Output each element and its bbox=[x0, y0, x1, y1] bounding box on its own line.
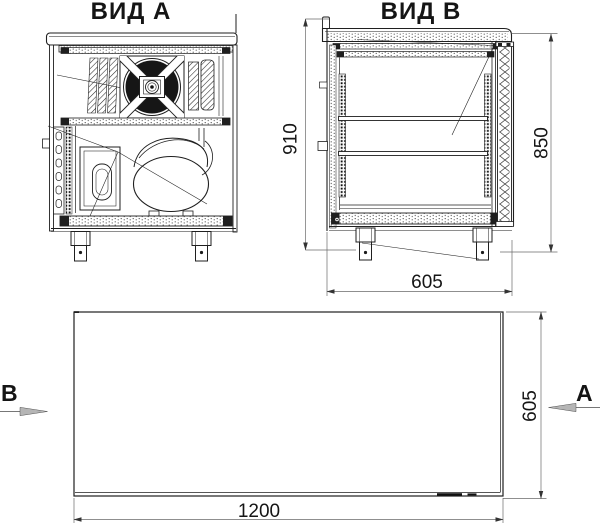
divider-shelf-a bbox=[61, 118, 230, 125]
section-arrow-b-label: B bbox=[1, 380, 18, 406]
dim-1200-label: 1200 bbox=[238, 501, 280, 522]
technical-drawing-canvas: ВИД А ВИД B 910 850 605 1200 605 B A bbox=[0, 0, 600, 523]
rear-bracket-b bbox=[318, 142, 328, 151]
plan-view-drawing bbox=[74, 311, 503, 496]
dim-910-label: 910 bbox=[281, 123, 302, 155]
fan-icon bbox=[117, 52, 187, 122]
rack-strip-a bbox=[66, 127, 72, 214]
shelf bbox=[339, 152, 488, 156]
view-b-title: ВИД B bbox=[381, 0, 462, 25]
shelf-rack-front bbox=[485, 74, 492, 197]
right-wall-a bbox=[233, 45, 237, 232]
left-wall-a bbox=[50, 45, 54, 231]
plan-outline bbox=[74, 312, 503, 496]
shelf-rack-rear bbox=[339, 74, 346, 197]
refrigerated-counter-drawing: ВИД А ВИД B 910 850 605 1200 605 B A bbox=[0, 0, 600, 523]
dim-605-depth-label: 605 bbox=[411, 272, 443, 293]
worktop-a bbox=[47, 33, 238, 45]
shelf bbox=[339, 117, 488, 121]
view-a-title: ВИД А bbox=[91, 0, 172, 25]
door-section bbox=[492, 42, 514, 227]
rear-bracket-a bbox=[43, 139, 50, 148]
dim-605-plan-label: 605 bbox=[520, 390, 541, 422]
dim-850-label: 850 bbox=[532, 127, 553, 159]
condenser-coil bbox=[88, 58, 119, 113]
base-rail-a bbox=[60, 216, 232, 226]
base-rail-b bbox=[332, 213, 499, 224]
starter-plate bbox=[80, 147, 120, 210]
section-arrow-a-label: A bbox=[576, 380, 593, 406]
